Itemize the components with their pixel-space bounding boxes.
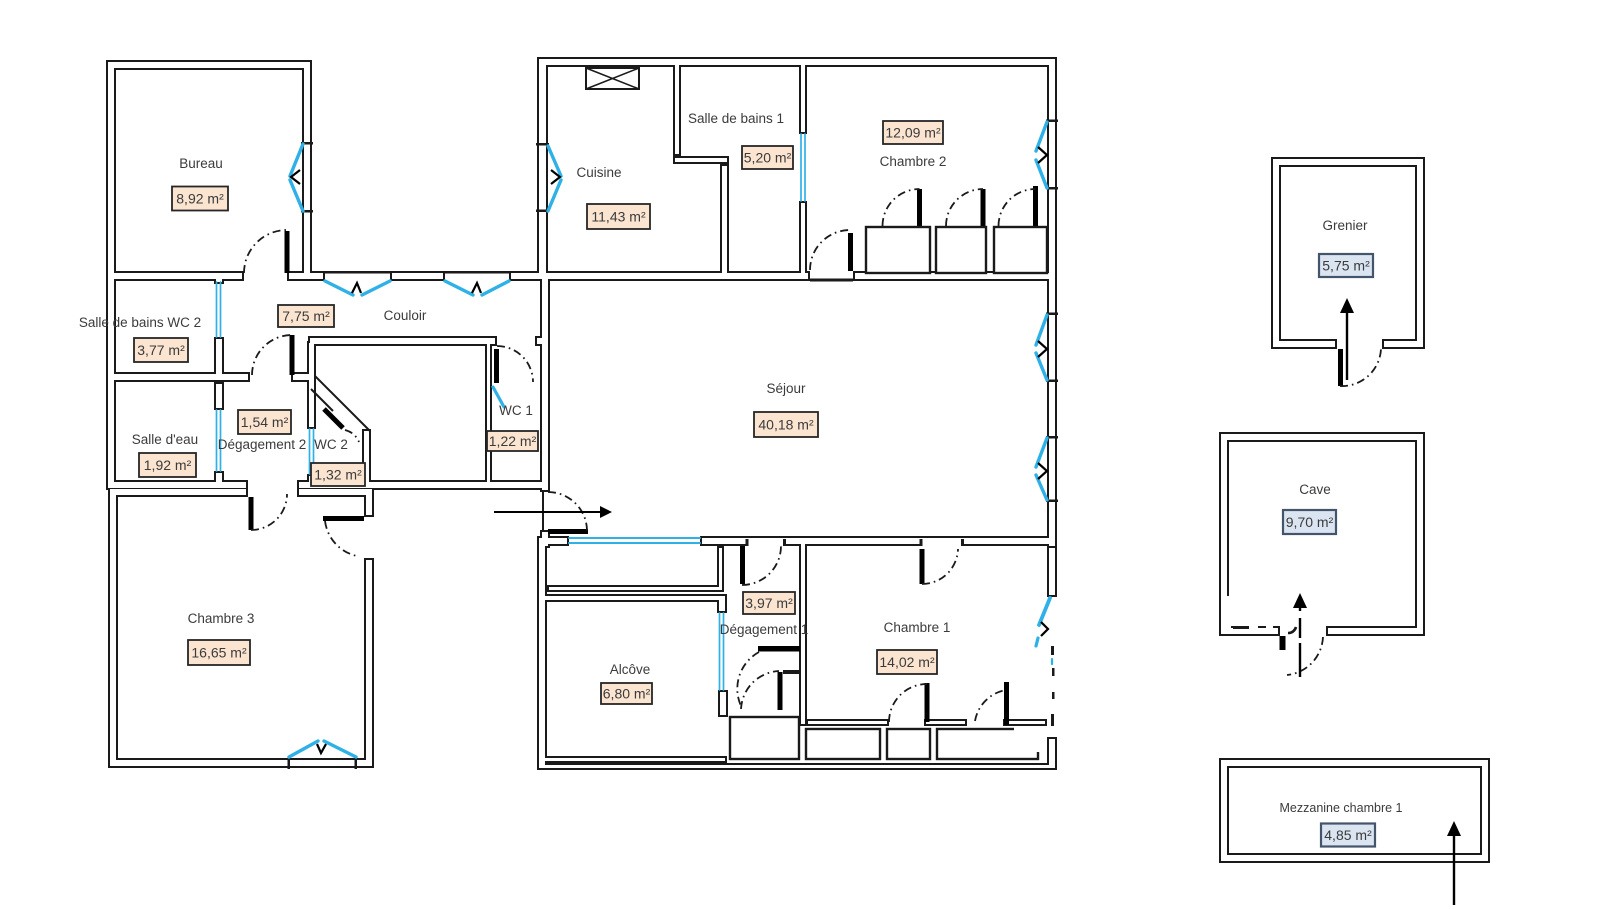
svg-text:11,43 m²: 11,43 m² (591, 209, 646, 225)
svg-text:1,32 m²: 1,32 m² (314, 467, 362, 483)
svg-text:Séjour: Séjour (766, 381, 806, 396)
svg-text:Chambre 1: Chambre 1 (884, 620, 951, 635)
svg-text:5,75 m²: 5,75 m² (1322, 258, 1370, 274)
svg-text:Chambre 3: Chambre 3 (188, 611, 255, 626)
svg-text:1,54 m²: 1,54 m² (241, 414, 289, 430)
svg-text:40,18 m²: 40,18 m² (758, 417, 814, 433)
svg-text:Couloir: Couloir (384, 308, 427, 323)
svg-text:Grenier: Grenier (1322, 218, 1368, 233)
svg-text:Cave: Cave (1299, 482, 1331, 497)
svg-text:Alcôve: Alcôve (610, 662, 651, 677)
svg-text:Bureau: Bureau (179, 156, 223, 171)
svg-text:12,09 m²: 12,09 m² (885, 125, 941, 141)
svg-text:Cuisine: Cuisine (576, 165, 621, 180)
svg-text:7,75 m²: 7,75 m² (282, 308, 330, 324)
svg-text:Salle d'eau: Salle d'eau (132, 432, 198, 447)
svg-text:WC 1: WC 1 (499, 403, 533, 418)
svg-text:Salle de bains WC 2: Salle de bains WC 2 (79, 315, 201, 330)
svg-text:1,92 m²: 1,92 m² (144, 457, 192, 473)
svg-text:Dégagement 1: Dégagement 1 (720, 622, 809, 637)
svg-text:3,77 m²: 3,77 m² (137, 342, 185, 358)
svg-text:16,65 m²: 16,65 m² (191, 645, 247, 661)
svg-text:1,22 m²: 1,22 m² (489, 433, 537, 449)
svg-text:Dégagement 2: Dégagement 2 (218, 437, 307, 452)
svg-text:9,70 m²: 9,70 m² (1286, 514, 1334, 530)
svg-text:6,80 m²: 6,80 m² (603, 686, 651, 702)
svg-text:Chambre 2: Chambre 2 (880, 154, 947, 169)
svg-text:Mezzanine chambre 1: Mezzanine chambre 1 (1280, 801, 1403, 815)
svg-text:3,97 m²: 3,97 m² (745, 595, 793, 611)
svg-text:Salle de bains 1: Salle de bains 1 (688, 111, 784, 126)
svg-text:8,92 m²: 8,92 m² (176, 191, 224, 207)
svg-text:4,85 m²: 4,85 m² (1324, 827, 1372, 843)
svg-text:14,02 m²: 14,02 m² (879, 654, 935, 670)
svg-text:WC 2: WC 2 (314, 437, 348, 452)
svg-text:5,20 m²: 5,20 m² (744, 150, 792, 166)
